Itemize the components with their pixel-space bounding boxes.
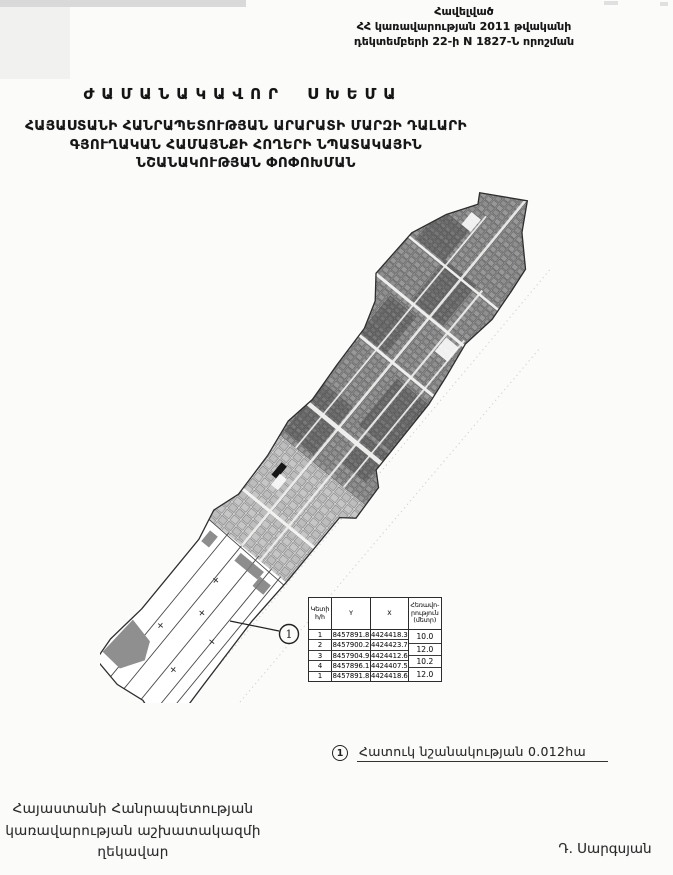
scan-artifact-strip [0,0,246,7]
legend-circle-icon: 1 [332,745,348,761]
column-header-point: Կետի հ/հ [309,598,332,629]
table-header-row: Կետի հ/հ Y X [309,598,408,630]
header-line: հ/հ [315,614,325,622]
column-header-x: X [371,598,408,629]
column-header-y: Y [332,598,371,629]
table-row: 28457900.24424423.7 [309,639,408,649]
distance-cells: 10.012.010.212.0 [409,630,441,681]
subtitle-line: ԳՅՈՒՂԱԿԱՆ ՀԱՄԱՅՆՔԻ ՀՈՂԵՐԻ ՆՊԱՏԱԿԱՅԻՆ [6,136,486,155]
signatory-title: Հայաստանի Հանրապետության կառավարության ա… [2,799,264,864]
header-line: (մետր) [413,617,436,625]
signatory-title-line: Հայաստանի Հանրապետության [2,799,264,821]
table-cell: 4424423.7 [371,640,408,649]
table-row: 48457896.14424407.5 [309,660,408,670]
signatory-title-line: կառավարության աշխատակազմի [2,821,264,843]
coordinate-rows: 18457891.84424418.328457900.24424423.738… [309,630,408,681]
scan-artifact-speck [660,2,668,6]
annex-note-line: Հավելված [318,4,610,19]
table-cell: 8457891.8 [332,630,371,639]
table-cell: 8457904.9 [332,651,371,660]
table-cell: 4424407.5 [371,661,408,670]
coordinates-table-main: Կետի հ/հ Y X 18457891.84424418.328457900… [309,598,409,681]
table-cell: 8457891.8 [332,672,371,681]
table-row: 18457891.84424418.6 [309,671,408,681]
distance-cell: 12.0 [409,644,441,656]
distance-cell: 10.2 [409,656,441,668]
table-cell: 1 [309,672,332,681]
annex-note-line: ՀՀ կառավարության 2011 թվականի [318,19,610,34]
distance-cell: 10.0 [409,630,441,644]
table-cell: 1 [309,630,332,639]
table-cell: 2 [309,640,332,649]
page-title: ԺԱՄԱՆԱԿԱՎՈՐ ՍԽԵՄԱ [28,85,458,103]
table-cell: 3 [309,651,332,660]
annex-reference-note: Հավելված ՀՀ կառավարության 2011 թվականի դ… [318,4,610,49]
table-cell: 4 [309,661,332,670]
subtitle-line: ՆՇԱՆԱԿՈՒԹՅԱՆ ՓՈՓՈԽՄԱՆ [6,154,486,173]
table-row: 18457891.84424418.3 [309,630,408,639]
scan-artifact-smudge [0,7,70,79]
signatory-name: Դ. Սարգսյան [545,841,665,857]
annex-note-line: դեկտեմբերի 22-ի N 1827-Ն որոշման [318,34,610,49]
header-line: Հեռավո- [410,602,439,610]
column-header-distance: Հեռավո- րություն (մետր) [409,598,441,630]
table-cell: 4424418.3 [371,630,408,639]
coordinates-table: Կետի հ/հ Y X 18457891.84424418.328457900… [308,597,442,682]
coordinates-table-distance-column: Հեռավո- րություն (մետր) 10.012.010.212.0 [409,598,441,681]
scanned-decree-page: Հավելված ՀՀ կառավարության 2011 թվականի դ… [0,0,673,875]
table-cell: 8457900.2 [332,640,371,649]
page-subtitle: ՀԱՅԱՍՏԱՆԻ ՀԱՆՐԱՊԵՏՈՒԹՅԱՆ ԱՐԱՐԱՏԻ ՄԱՐԶԻ Դ… [6,117,486,173]
subtitle-line: ՀԱՅԱՍՏԱՆԻ ՀԱՆՐԱՊԵՏՈՒԹՅԱՆ ԱՐԱՐԱՏԻ ՄԱՐԶԻ Դ… [6,117,486,136]
signatory-title-line: ղեկավար [2,842,264,864]
callout-marker-number: 1 [286,628,293,641]
legend: 1 Հատուկ նշանակության 0.012հա [332,744,608,762]
table-cell: 4424418.6 [371,672,408,681]
table-cell: 8457896.1 [332,661,371,670]
header-line: Կետի [311,606,330,614]
table-row: 38457904.94424412.6 [309,650,408,660]
distance-cell: 12.0 [409,668,441,681]
legend-label: Հատուկ նշանակության 0.012հա [357,744,608,762]
table-cell: 4424412.6 [371,651,408,660]
